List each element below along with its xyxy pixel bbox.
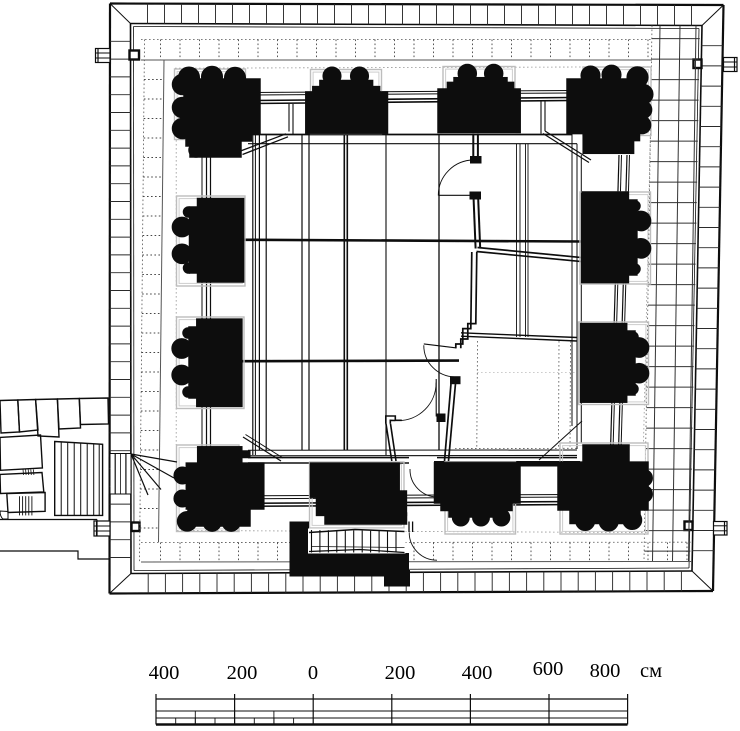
svg-text:см: см <box>640 660 662 682</box>
svg-text:800: 800 <box>590 660 621 682</box>
svg-text:200: 200 <box>385 662 416 684</box>
svg-text:0: 0 <box>308 662 318 684</box>
svg-text:400: 400 <box>149 662 180 684</box>
svg-text:200: 200 <box>227 662 258 684</box>
svg-text:400: 400 <box>462 662 493 684</box>
svg-text:600: 600 <box>533 658 564 680</box>
